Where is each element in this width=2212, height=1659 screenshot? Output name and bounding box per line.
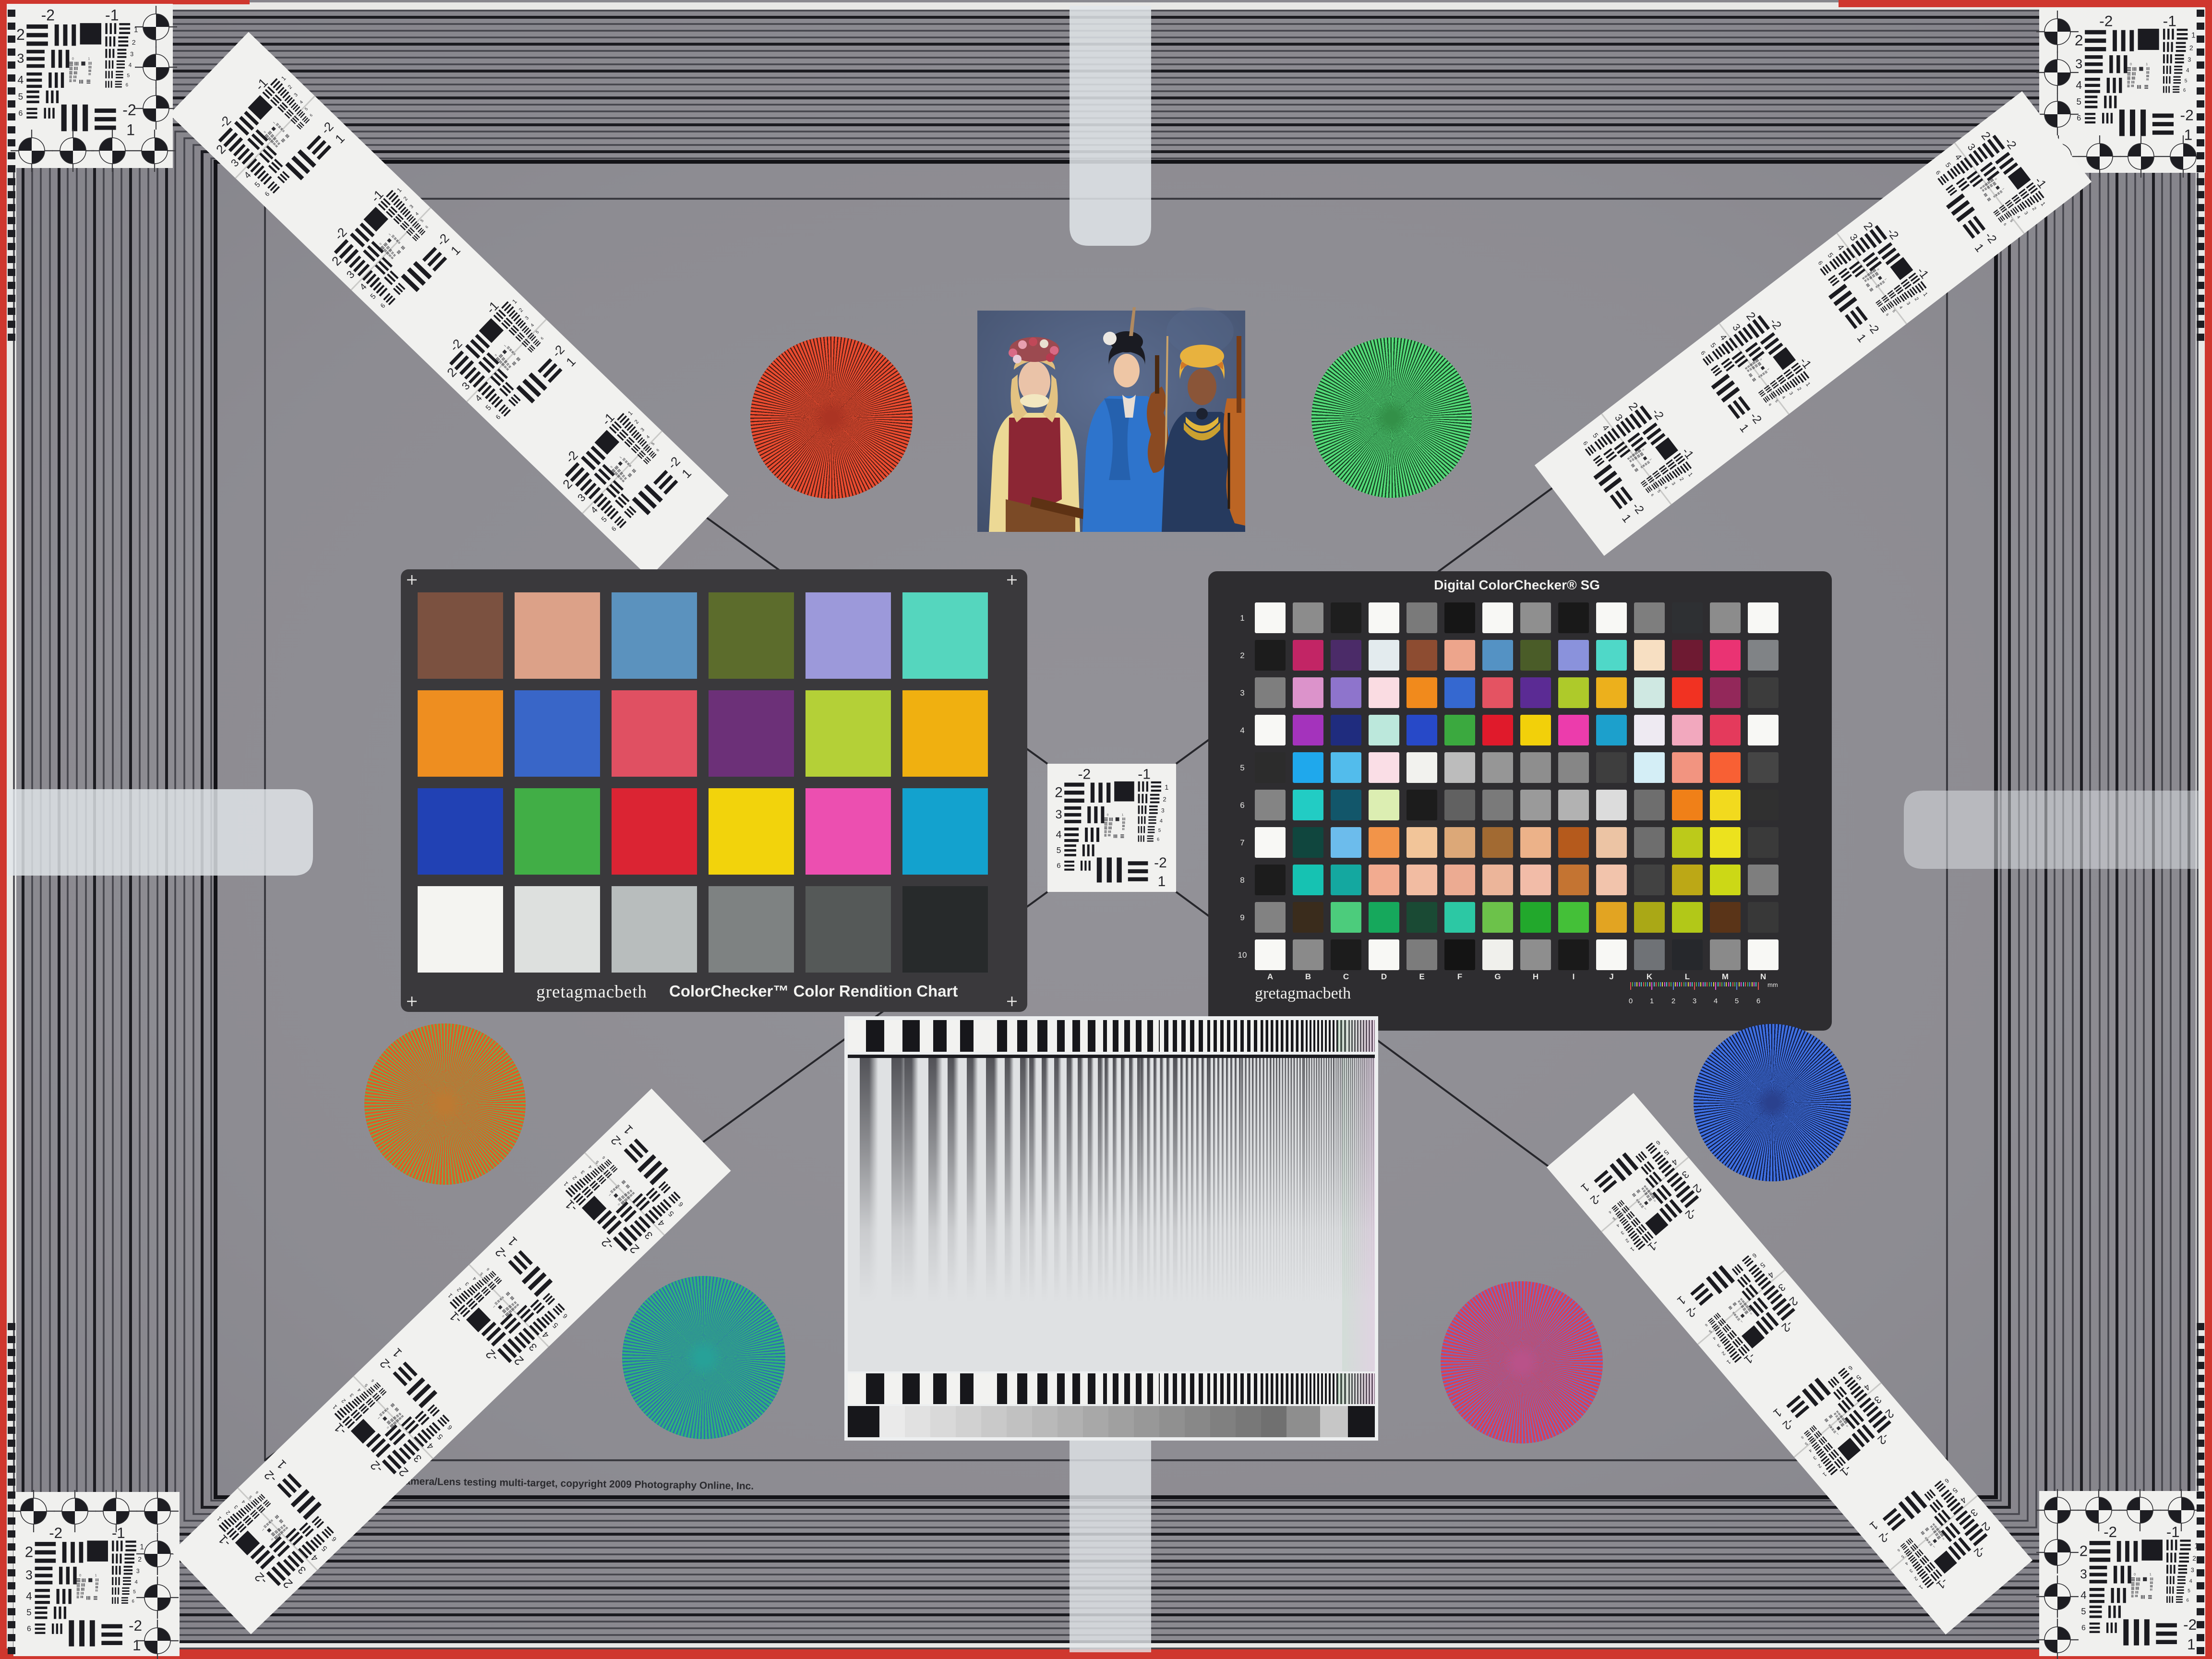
svg-text:gretagmacbeth: gretagmacbeth — [536, 982, 647, 1002]
svg-text:K: K — [1647, 972, 1653, 981]
svg-text:N: N — [1760, 972, 1766, 981]
svg-text:G: G — [1494, 972, 1501, 981]
svg-text:J: J — [1609, 972, 1613, 981]
svg-text:3: 3 — [1240, 688, 1244, 697]
svg-text:ColorChecker™ Color Rendition: ColorChecker™ Color Rendition Chart — [669, 982, 958, 1000]
svg-text:H: H — [1533, 972, 1539, 981]
svg-text:0: 0 — [1629, 997, 1633, 1005]
svg-text:mm: mm — [1767, 981, 1778, 988]
svg-text:2: 2 — [1240, 651, 1244, 660]
svg-text:L: L — [1685, 972, 1690, 981]
svg-text:F: F — [1457, 972, 1462, 981]
svg-text:2: 2 — [1671, 997, 1675, 1005]
svg-text:5: 5 — [1240, 763, 1244, 772]
svg-text:8: 8 — [1240, 876, 1244, 885]
svg-text:M: M — [1722, 972, 1729, 981]
svg-text:C: C — [1343, 972, 1349, 981]
svg-text:6: 6 — [1756, 997, 1760, 1005]
svg-text:A: A — [1267, 972, 1273, 981]
svg-text:E: E — [1419, 972, 1424, 981]
svg-text:3: 3 — [1693, 997, 1696, 1005]
svg-text:6: 6 — [1240, 801, 1244, 810]
svg-text:4: 4 — [1714, 997, 1718, 1005]
svg-text:I: I — [1573, 972, 1575, 981]
svg-text:Digital ColorChecker® SG: Digital ColorChecker® SG — [1434, 577, 1600, 592]
svg-text:1: 1 — [1240, 613, 1244, 623]
svg-text:D: D — [1381, 972, 1387, 981]
svg-text:gretagmacbeth: gretagmacbeth — [1255, 985, 1351, 1002]
svg-text:5: 5 — [1735, 997, 1739, 1005]
svg-text:7: 7 — [1240, 838, 1244, 847]
svg-text:4: 4 — [1240, 726, 1244, 735]
svg-text:1: 1 — [1650, 997, 1654, 1005]
svg-text:10: 10 — [1238, 950, 1247, 960]
svg-text:B: B — [1305, 972, 1311, 981]
svg-text:9: 9 — [1240, 913, 1244, 922]
